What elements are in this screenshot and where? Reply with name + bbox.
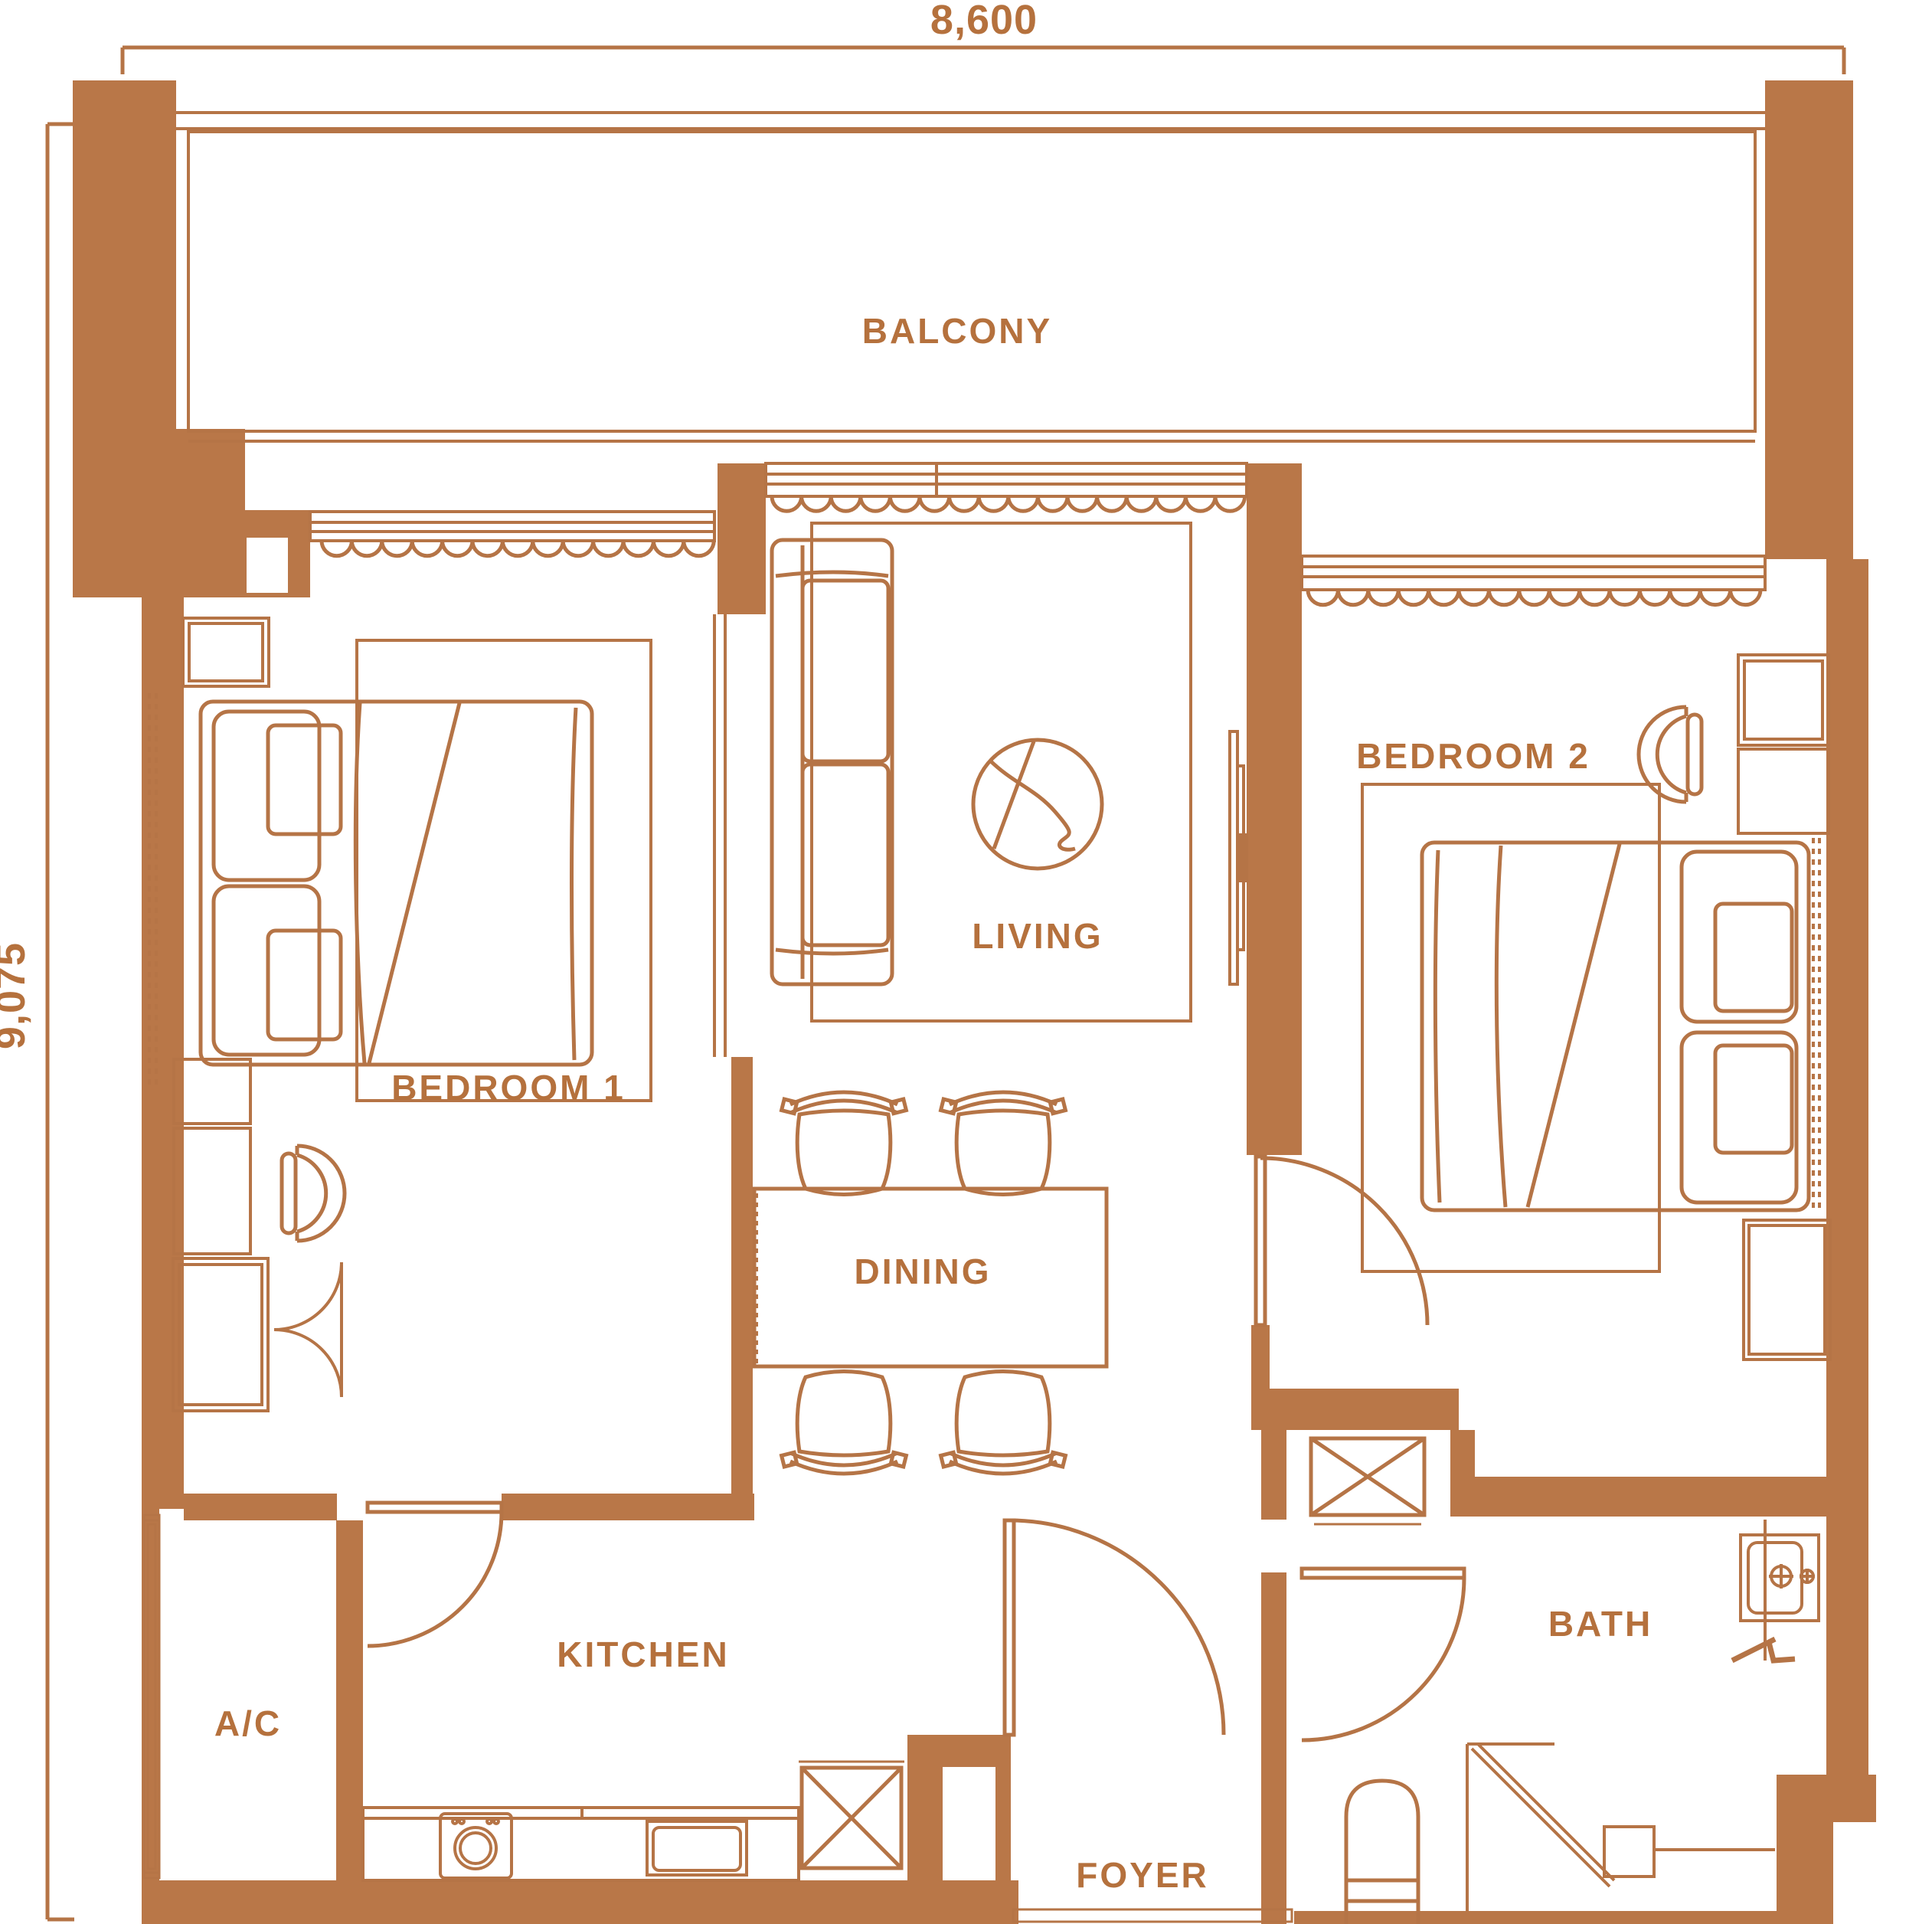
- round-rug-icon: [973, 740, 1102, 869]
- room-label-ac: A/C: [214, 1703, 282, 1743]
- room-label-living: LIVING: [972, 916, 1103, 956]
- desk-chair-icon: [282, 1146, 345, 1241]
- pillow-icon: [214, 712, 341, 1055]
- kitchen: [144, 1503, 799, 1880]
- dimension-left: [47, 124, 74, 1919]
- rug-icon: [357, 640, 651, 1101]
- door-swing-icon: [274, 1262, 342, 1397]
- room-label-bedroom1: BEDROOM 1: [391, 1068, 626, 1108]
- door-swing-icon: [1005, 1520, 1224, 1735]
- floor-plan-drawing: 8,600 9,075: [0, 0, 1932, 1924]
- door-swing-icon: [1256, 1157, 1427, 1325]
- walls: [73, 80, 1876, 1924]
- shaft-x-icon: [799, 1762, 904, 1868]
- bath-sink-icon: [1741, 1535, 1819, 1621]
- room-label-foyer: FOYER: [1076, 1855, 1208, 1895]
- double-bed-icon: [201, 702, 592, 1065]
- room-label-bath: BATH: [1548, 1604, 1652, 1644]
- kitchen-sink-icon: [647, 1821, 747, 1875]
- double-bed-icon: [1422, 843, 1809, 1210]
- desk-chair-icon: [1639, 707, 1702, 802]
- floor-plan-page: 8,600 9,075: [0, 0, 1932, 1924]
- door-swing-icon: [1302, 1569, 1464, 1740]
- shower-icon: [1467, 1744, 1775, 1911]
- room-label-bedroom2: BEDROOM 2: [1356, 736, 1590, 776]
- door-swing-icon: [368, 1503, 502, 1646]
- sofa-icon: [772, 540, 892, 984]
- sliding-window-icon: [310, 463, 1765, 590]
- wall-corner-notch: [247, 538, 288, 593]
- wardrobe-icon: [1738, 655, 1830, 1360]
- foyer: [799, 1520, 1292, 1922]
- pillow-icon: [1682, 852, 1796, 1202]
- dimension-height-label: 9,075: [0, 942, 34, 1049]
- bedroom1: [149, 614, 725, 1411]
- balcony-slab-lines: [176, 113, 1765, 441]
- dimension-top: [123, 47, 1844, 74]
- washing-machine-icon: [440, 1814, 512, 1878]
- room-label-dining: DINING: [855, 1252, 992, 1291]
- tv-icon: [1230, 731, 1247, 984]
- dimension-width-label: 8,600: [930, 0, 1038, 43]
- shaft-x-icon: [1311, 1438, 1424, 1524]
- room-label-balcony: BALCONY: [862, 311, 1052, 351]
- toilet-icon: [1346, 1781, 1418, 1924]
- room-label-kitchen: KITCHEN: [557, 1634, 729, 1674]
- wardrobe-icon: [173, 618, 269, 1411]
